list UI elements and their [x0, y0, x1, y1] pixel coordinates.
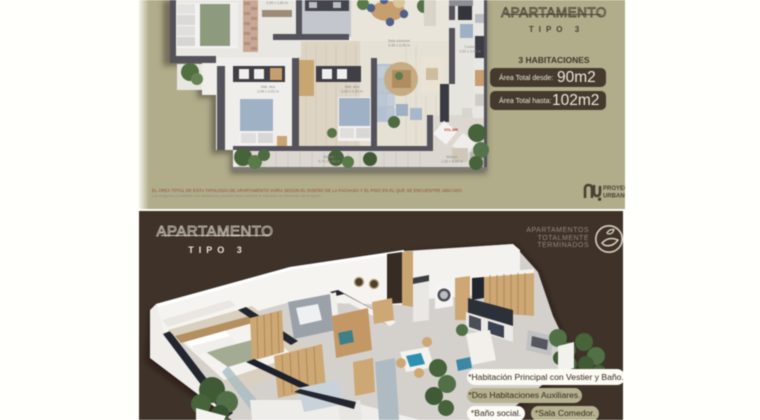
svg-text:3,45 x 3,05 m: 3,45 x 3,05 m [388, 44, 410, 48]
svg-text:3,05 x 1,60 m: 3,05 x 1,60 m [266, 1, 288, 5]
svg-text:Balcón: Balcón [324, 155, 335, 159]
svg-text:5,75 x 0,98 m: 5,75 x 0,98 m [318, 160, 340, 164]
svg-text:1,65 x 4,10 m: 1,65 x 4,10 m [441, 160, 463, 164]
svg-text:3,08 x 3,02 m: 3,08 x 3,02 m [257, 90, 279, 94]
svg-text:VOL.MR: VOL.MR [444, 128, 458, 132]
svg-text:Ropas: Ropas [450, 1, 461, 5]
svg-text:Balcón: Balcón [447, 155, 458, 159]
svg-text:Cocina: Cocina [464, 45, 475, 49]
svg-text:3,90 x 1,50 m: 3,90 x 1,50 m [459, 50, 481, 54]
svg-text:Hab. Aux: Hab. Aux [261, 85, 276, 89]
svg-text:Sala comedor: Sala comedor [388, 39, 411, 43]
svg-text:PROYECTO: PROYECTO [603, 186, 625, 192]
svg-text:URBANO: URBANO [603, 194, 625, 200]
svg-text:Hab. Aux: Hab. Aux [345, 85, 360, 89]
svg-text:3,05 x 3,30 m: 3,05 x 3,30 m [341, 90, 363, 94]
